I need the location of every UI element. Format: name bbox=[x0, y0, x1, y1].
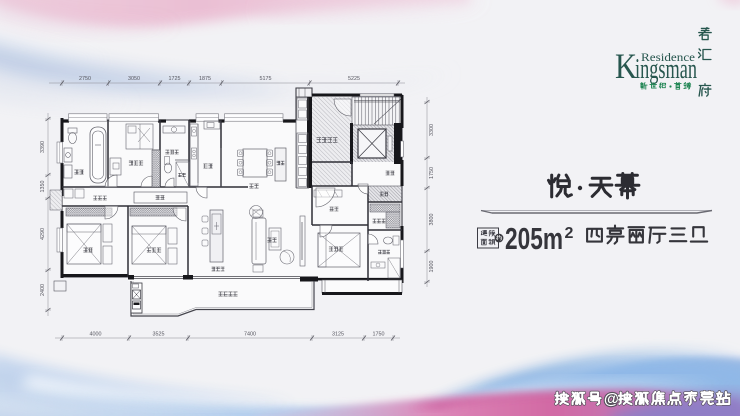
svg-text:3390: 3390 bbox=[40, 141, 46, 153]
svg-text:1750: 1750 bbox=[429, 167, 435, 179]
svg-text:205m: 205m bbox=[505, 221, 563, 256]
svg-text:1900: 1900 bbox=[429, 261, 435, 273]
svg-text:2: 2 bbox=[565, 225, 574, 242]
svg-text:1350: 1350 bbox=[40, 181, 46, 193]
svg-text:@: @ bbox=[604, 391, 619, 408]
svg-text:1725: 1725 bbox=[169, 76, 181, 82]
svg-text:3125: 3125 bbox=[332, 332, 344, 338]
svg-text:Residence: Residence bbox=[641, 52, 695, 64]
svg-text:3525: 3525 bbox=[153, 332, 165, 338]
svg-text:3800: 3800 bbox=[429, 214, 435, 226]
svg-text:4290: 4290 bbox=[40, 228, 46, 240]
svg-text:5225: 5225 bbox=[348, 76, 360, 82]
svg-text:5175: 5175 bbox=[260, 76, 272, 82]
svg-text:1750: 1750 bbox=[373, 332, 385, 338]
svg-text:4000: 4000 bbox=[90, 332, 102, 338]
svg-text:2400: 2400 bbox=[40, 284, 46, 296]
svg-text:1875: 1875 bbox=[199, 76, 211, 82]
svg-text:3050: 3050 bbox=[128, 76, 140, 82]
svg-text:2750: 2750 bbox=[79, 76, 91, 82]
svg-text:7400: 7400 bbox=[244, 332, 256, 338]
svg-text:3300: 3300 bbox=[429, 124, 435, 136]
